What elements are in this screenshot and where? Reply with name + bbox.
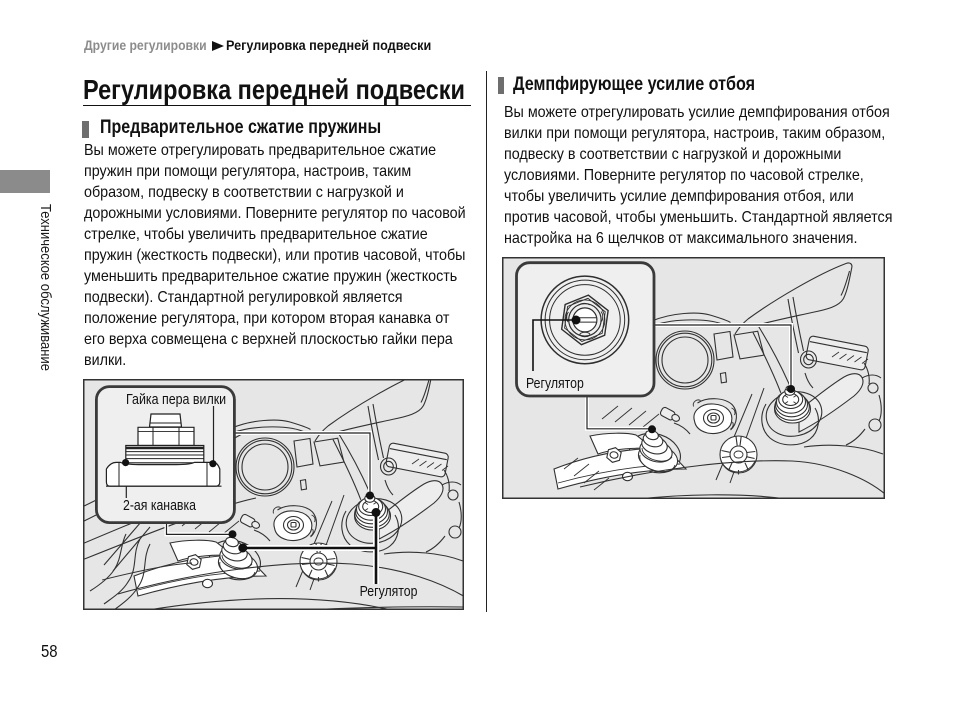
svg-text:Гайка пера вилки: Гайка пера вилки: [126, 391, 226, 407]
svg-text:Регулятор: Регулятор: [526, 375, 584, 391]
svg-text:Регулятор: Регулятор: [360, 583, 418, 599]
svg-text:2-ая канавка: 2-ая канавка: [123, 497, 196, 513]
